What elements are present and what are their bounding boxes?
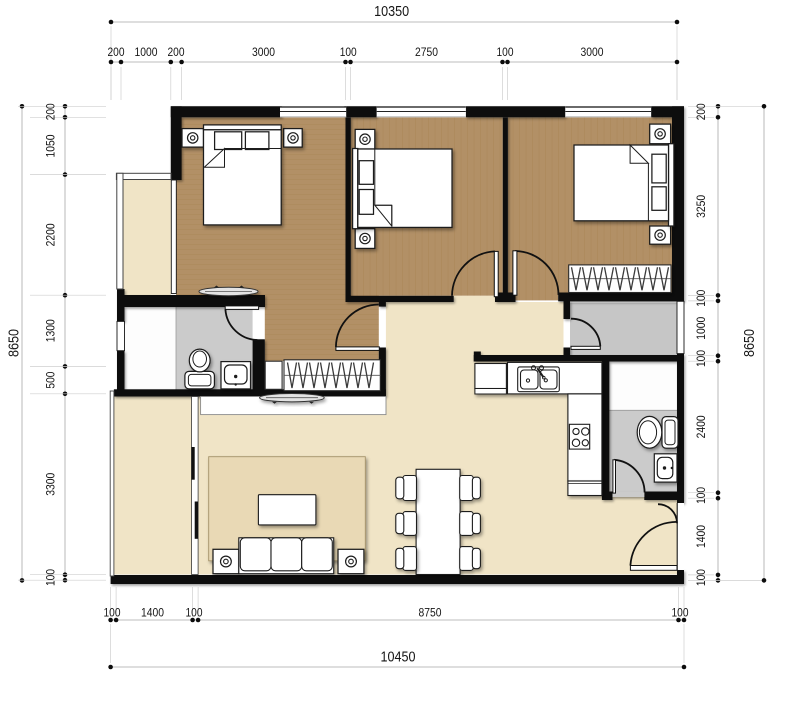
svg-text:200: 200: [168, 45, 185, 59]
svg-text:3300: 3300: [44, 473, 58, 496]
svg-text:3000: 3000: [252, 45, 275, 59]
svg-text:2200: 2200: [44, 223, 58, 246]
svg-text:100: 100: [44, 569, 58, 586]
svg-text:1000: 1000: [135, 45, 158, 59]
svg-text:100: 100: [497, 45, 514, 59]
svg-text:8650: 8650: [742, 329, 758, 357]
svg-text:1050: 1050: [44, 134, 58, 157]
svg-text:100: 100: [694, 289, 708, 306]
svg-text:200: 200: [44, 103, 58, 120]
svg-text:100: 100: [694, 569, 708, 586]
svg-text:200: 200: [694, 103, 708, 120]
svg-text:1000: 1000: [694, 317, 708, 340]
svg-text:1400: 1400: [141, 606, 164, 620]
svg-text:100: 100: [694, 487, 708, 504]
svg-text:8650: 8650: [7, 329, 23, 357]
svg-text:100: 100: [186, 606, 203, 620]
svg-text:10350: 10350: [374, 4, 409, 20]
svg-text:1400: 1400: [694, 525, 708, 548]
svg-text:100: 100: [340, 45, 357, 59]
svg-text:3000: 3000: [581, 45, 604, 59]
svg-text:1300: 1300: [44, 319, 58, 342]
svg-text:200: 200: [108, 45, 125, 59]
svg-text:100: 100: [672, 606, 689, 620]
svg-text:500: 500: [44, 371, 58, 388]
svg-text:10450: 10450: [381, 650, 416, 666]
svg-text:2750: 2750: [415, 45, 438, 59]
svg-text:8750: 8750: [419, 606, 442, 620]
svg-text:100: 100: [694, 350, 708, 367]
svg-text:2400: 2400: [694, 415, 708, 438]
svg-text:3250: 3250: [694, 195, 708, 218]
svg-text:100: 100: [104, 606, 121, 620]
